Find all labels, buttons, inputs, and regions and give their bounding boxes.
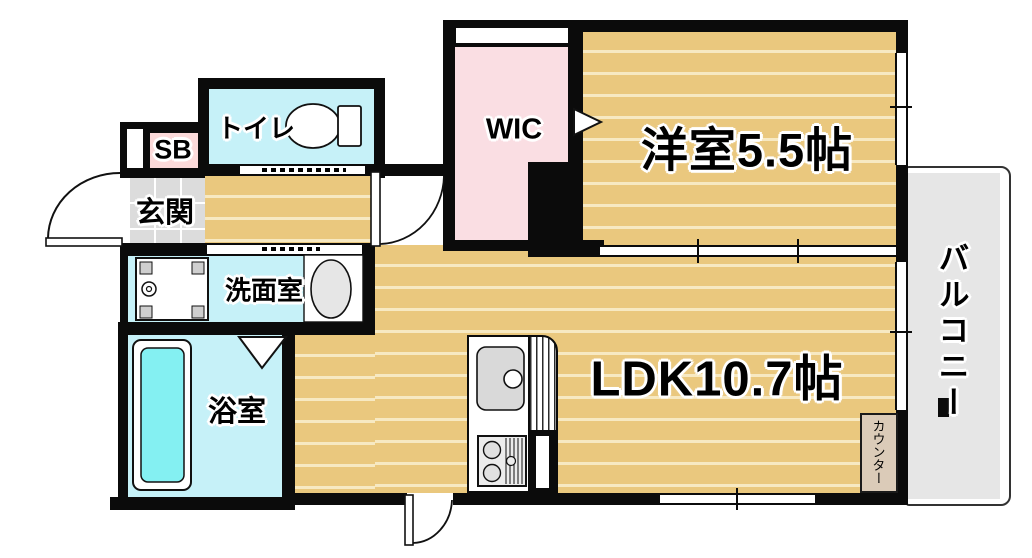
floor-plan: トイレ SB 玄関 洗面室 浴室 WIC 洋室5.5帖 LDK10.7帖 バルコ… [0,0,1032,558]
western-room-label: 洋室5.5帖 [641,112,853,181]
window-ldk-tick [890,331,912,333]
wall-wic-bottom [443,240,533,251]
kitchen-unit [467,335,530,493]
wall-bath-right [282,322,295,510]
wall-toilet-right [374,78,385,178]
window-ldk [895,262,908,410]
wall-right-upper [896,20,908,53]
wall-toilet-top [198,78,385,89]
toilet-sliding-dashes [262,168,346,172]
sliding-door-tick-1 [697,239,699,263]
sb-pier-slit [127,129,143,168]
washroom-label: 洗面室 [225,271,303,308]
wall-wic-corner-block [528,162,583,251]
wall-bath-left [118,322,128,510]
toilet-label: トイレ [217,109,295,146]
hall-door-swing-area [375,176,443,243]
washroom-sliding-dashes [262,247,320,251]
wic-floor-lower [455,165,528,242]
wic-label: WIC [486,114,542,147]
wic-floor-upper [455,44,568,165]
window-bottom-tick [736,488,738,510]
wall-wic-left [443,20,455,251]
ldk-floor-left [295,335,375,493]
shoe-box-label: SB [154,135,192,166]
wall-sb-bottom [120,168,205,178]
wall-divider-left [528,240,604,257]
bathroom-label: 浴室 [208,388,266,430]
counter-label: カウンター [869,420,888,485]
ldk-door-gap [407,493,453,505]
kitchen-counter-edge [528,335,558,432]
sliding-door-bedroom-ldk [600,245,896,257]
sliding-door-tick-2 [797,239,799,263]
kitchen-side-slit [536,436,549,488]
wall-right-mid [896,165,908,262]
wall-top-bedroom [573,20,908,32]
wall-wic-right [568,20,583,165]
window-bedroom [895,53,908,165]
ldk-label: LDK10.7帖 [590,340,843,411]
wall-bath-bottom [110,497,295,510]
wic-closet-opening [456,28,569,43]
balcony-label: バルコニー [929,242,974,422]
window-bedroom-tick [890,106,912,108]
wall-washroom-bottom [120,322,375,335]
entrance-label: 玄関 [136,189,194,231]
entrance-door-icon [46,173,122,246]
